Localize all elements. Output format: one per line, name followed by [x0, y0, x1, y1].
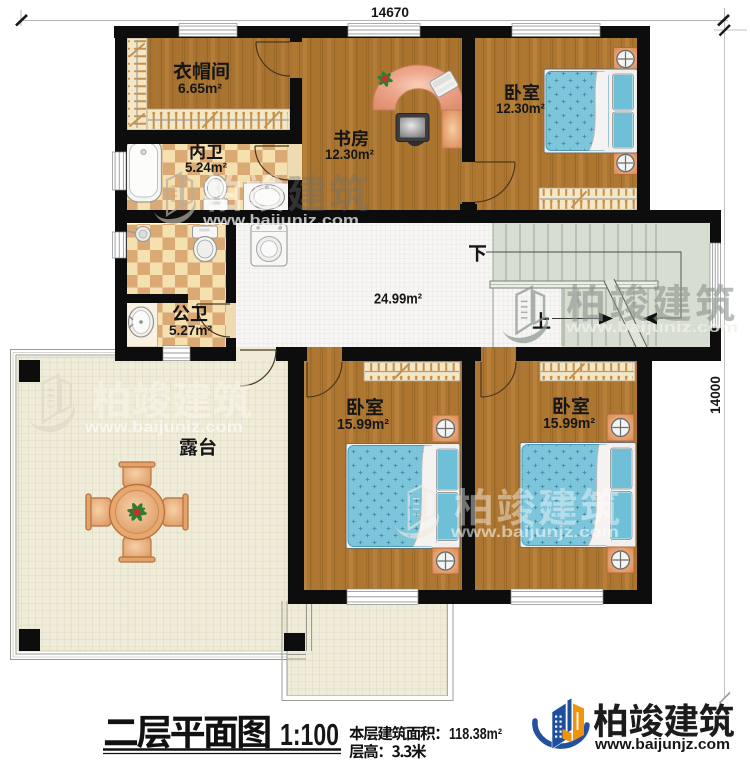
- svg-text:6.65m²: 6.65m²: [178, 80, 222, 96]
- svg-text:www.baijunjz.com: www.baijunjz.com: [594, 736, 730, 753]
- svg-text:5.27m²: 5.27m²: [169, 322, 212, 338]
- svg-text:www.baijuniz.com: www.baijuniz.com: [84, 419, 243, 436]
- svg-text:118.38m²: 118.38m²: [449, 726, 502, 743]
- svg-text:14000: 14000: [707, 376, 723, 414]
- svg-text:www.baijunjz.com: www.baijunjz.com: [450, 524, 619, 541]
- svg-text:15.99m²: 15.99m²: [543, 416, 595, 432]
- svg-text:15.99m²: 15.99m²: [337, 417, 389, 433]
- svg-text:12.30m²: 12.30m²: [496, 100, 545, 116]
- svg-text:24.99m²: 24.99m²: [374, 292, 422, 308]
- svg-text:14670: 14670: [371, 4, 409, 20]
- svg-text:www.baijuniz.com: www.baijuniz.com: [202, 213, 359, 229]
- svg-text:12.30m²: 12.30m²: [325, 146, 374, 162]
- svg-text:1:100: 1:100: [280, 717, 339, 752]
- svg-text:5.24m²: 5.24m²: [185, 159, 227, 175]
- svg-text:www.baijuniz.com: www.baijuniz.com: [565, 319, 738, 336]
